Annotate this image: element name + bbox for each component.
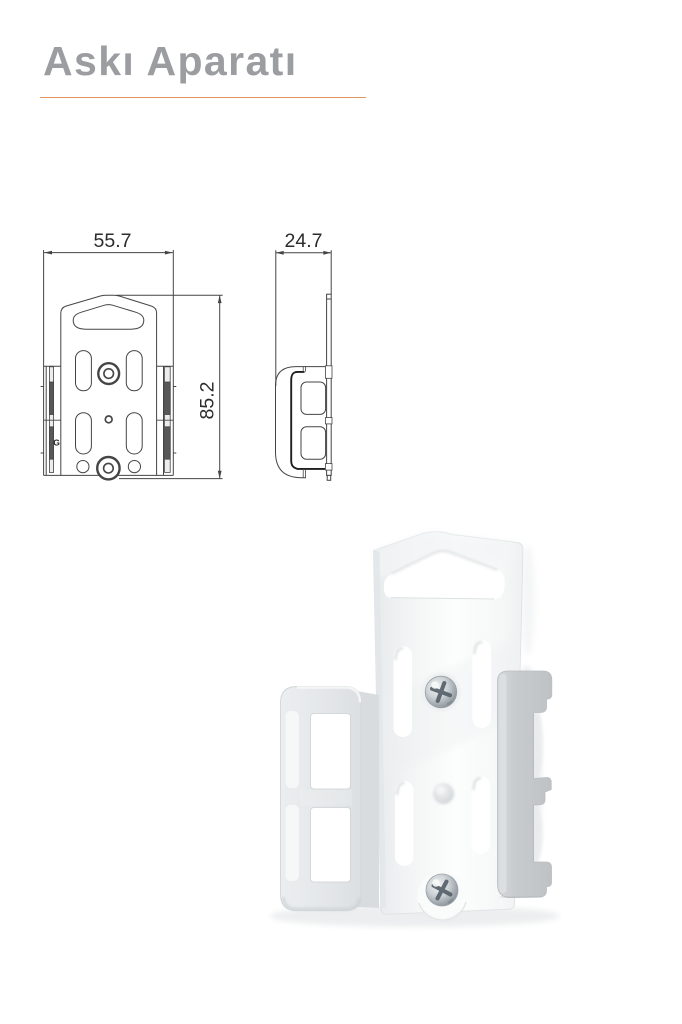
svg-text:24.7: 24.7 [285, 230, 323, 252]
svg-text:55.7: 55.7 [94, 230, 132, 252]
svg-text:85.2: 85.2 [197, 382, 219, 420]
svg-text:G: G [53, 438, 60, 448]
